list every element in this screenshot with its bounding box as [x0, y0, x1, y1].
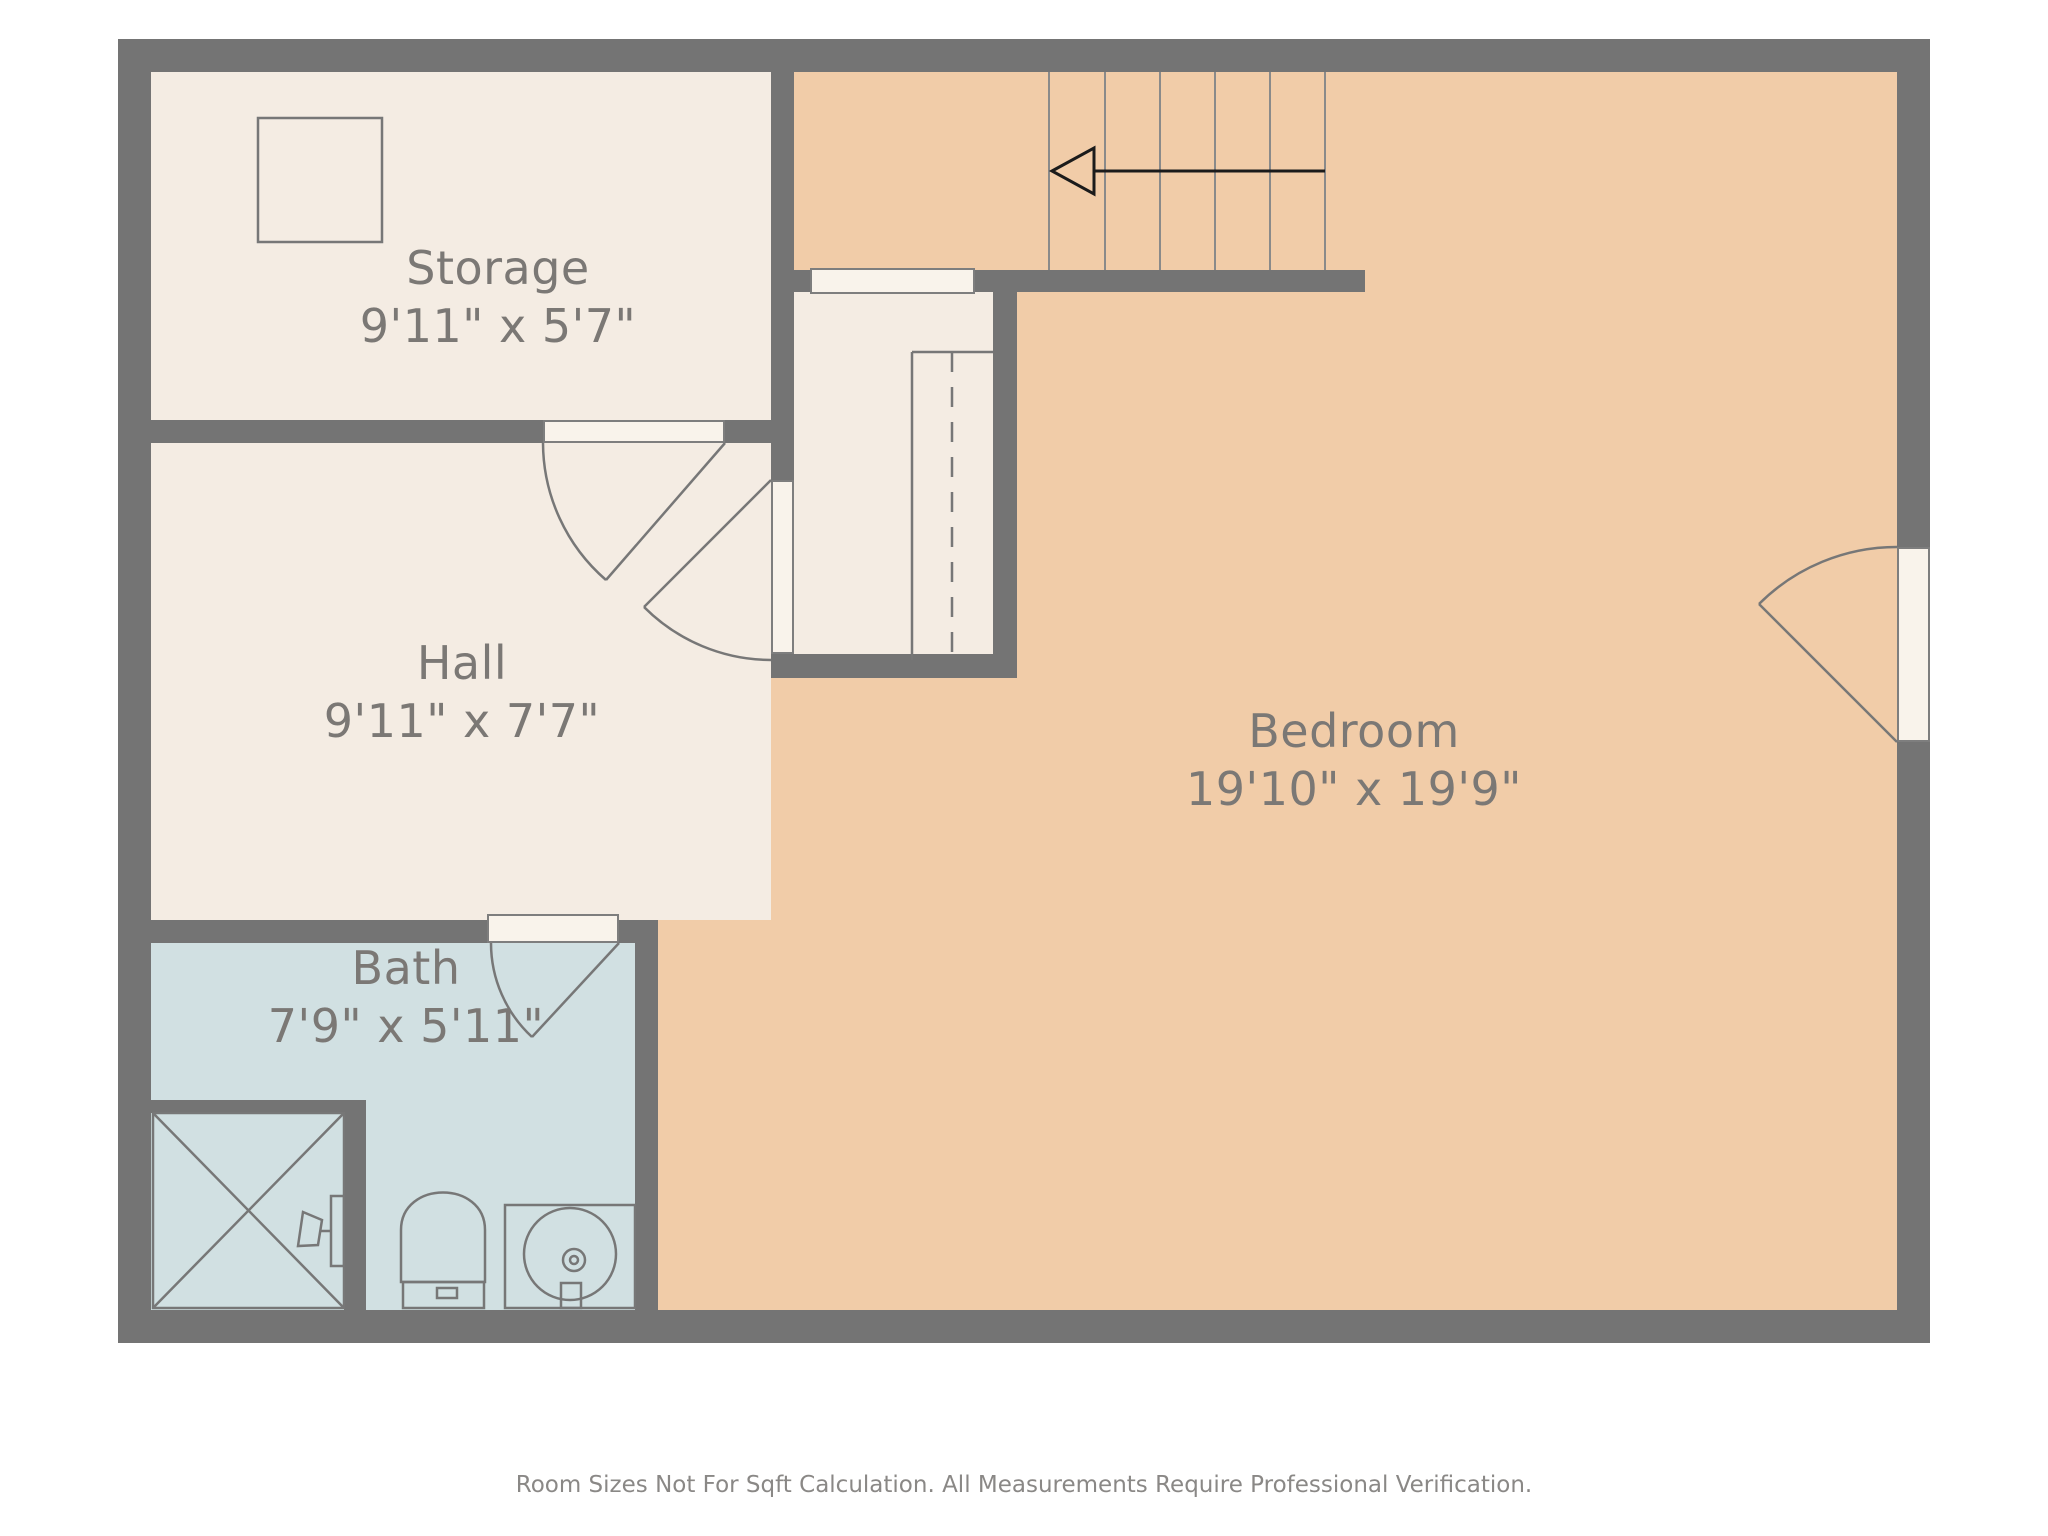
shower-head-icon	[298, 1196, 344, 1266]
disclaimer-text: Room Sizes Not For Sqft Calculation. All…	[0, 1472, 2048, 1498]
shower-icon	[153, 1113, 344, 1308]
bedroom-label: Bedroom 19'10" x 19'9"	[1104, 702, 1604, 818]
sink-vanity-icon	[505, 1205, 635, 1308]
floorplan-linework	[0, 0, 2048, 1536]
closet-door	[644, 480, 771, 660]
storage-door	[543, 443, 725, 580]
toilet-icon	[401, 1193, 485, 1309]
storage-label: Storage 9'11" x 5'7"	[298, 239, 698, 355]
bath-label: Bath 7'9" x 5'11"	[206, 939, 606, 1055]
hall-label: Hall 9'11" x 7'7"	[262, 634, 662, 750]
bedroom-name: Bedroom	[1104, 702, 1604, 760]
storage-dimensions: 9'11" x 5'7"	[298, 297, 698, 355]
bedroom-dimensions: 19'10" x 19'9"	[1104, 760, 1604, 818]
stair-direction-arrow-icon	[1052, 148, 1325, 194]
bath-name: Bath	[206, 939, 606, 997]
bedroom-door	[1759, 547, 1897, 742]
closet-interior	[912, 352, 993, 660]
hall-dimensions: 9'11" x 7'7"	[262, 692, 662, 750]
storage-fixture-box	[258, 118, 382, 242]
bath-dimensions: 7'9" x 5'11"	[206, 997, 606, 1055]
storage-name: Storage	[298, 239, 698, 297]
hall-name: Hall	[262, 634, 662, 692]
staircase	[1049, 72, 1325, 270]
floor-plan: Storage 9'11" x 5'7" Hall 9'11" x 7'7" B…	[0, 0, 2048, 1536]
